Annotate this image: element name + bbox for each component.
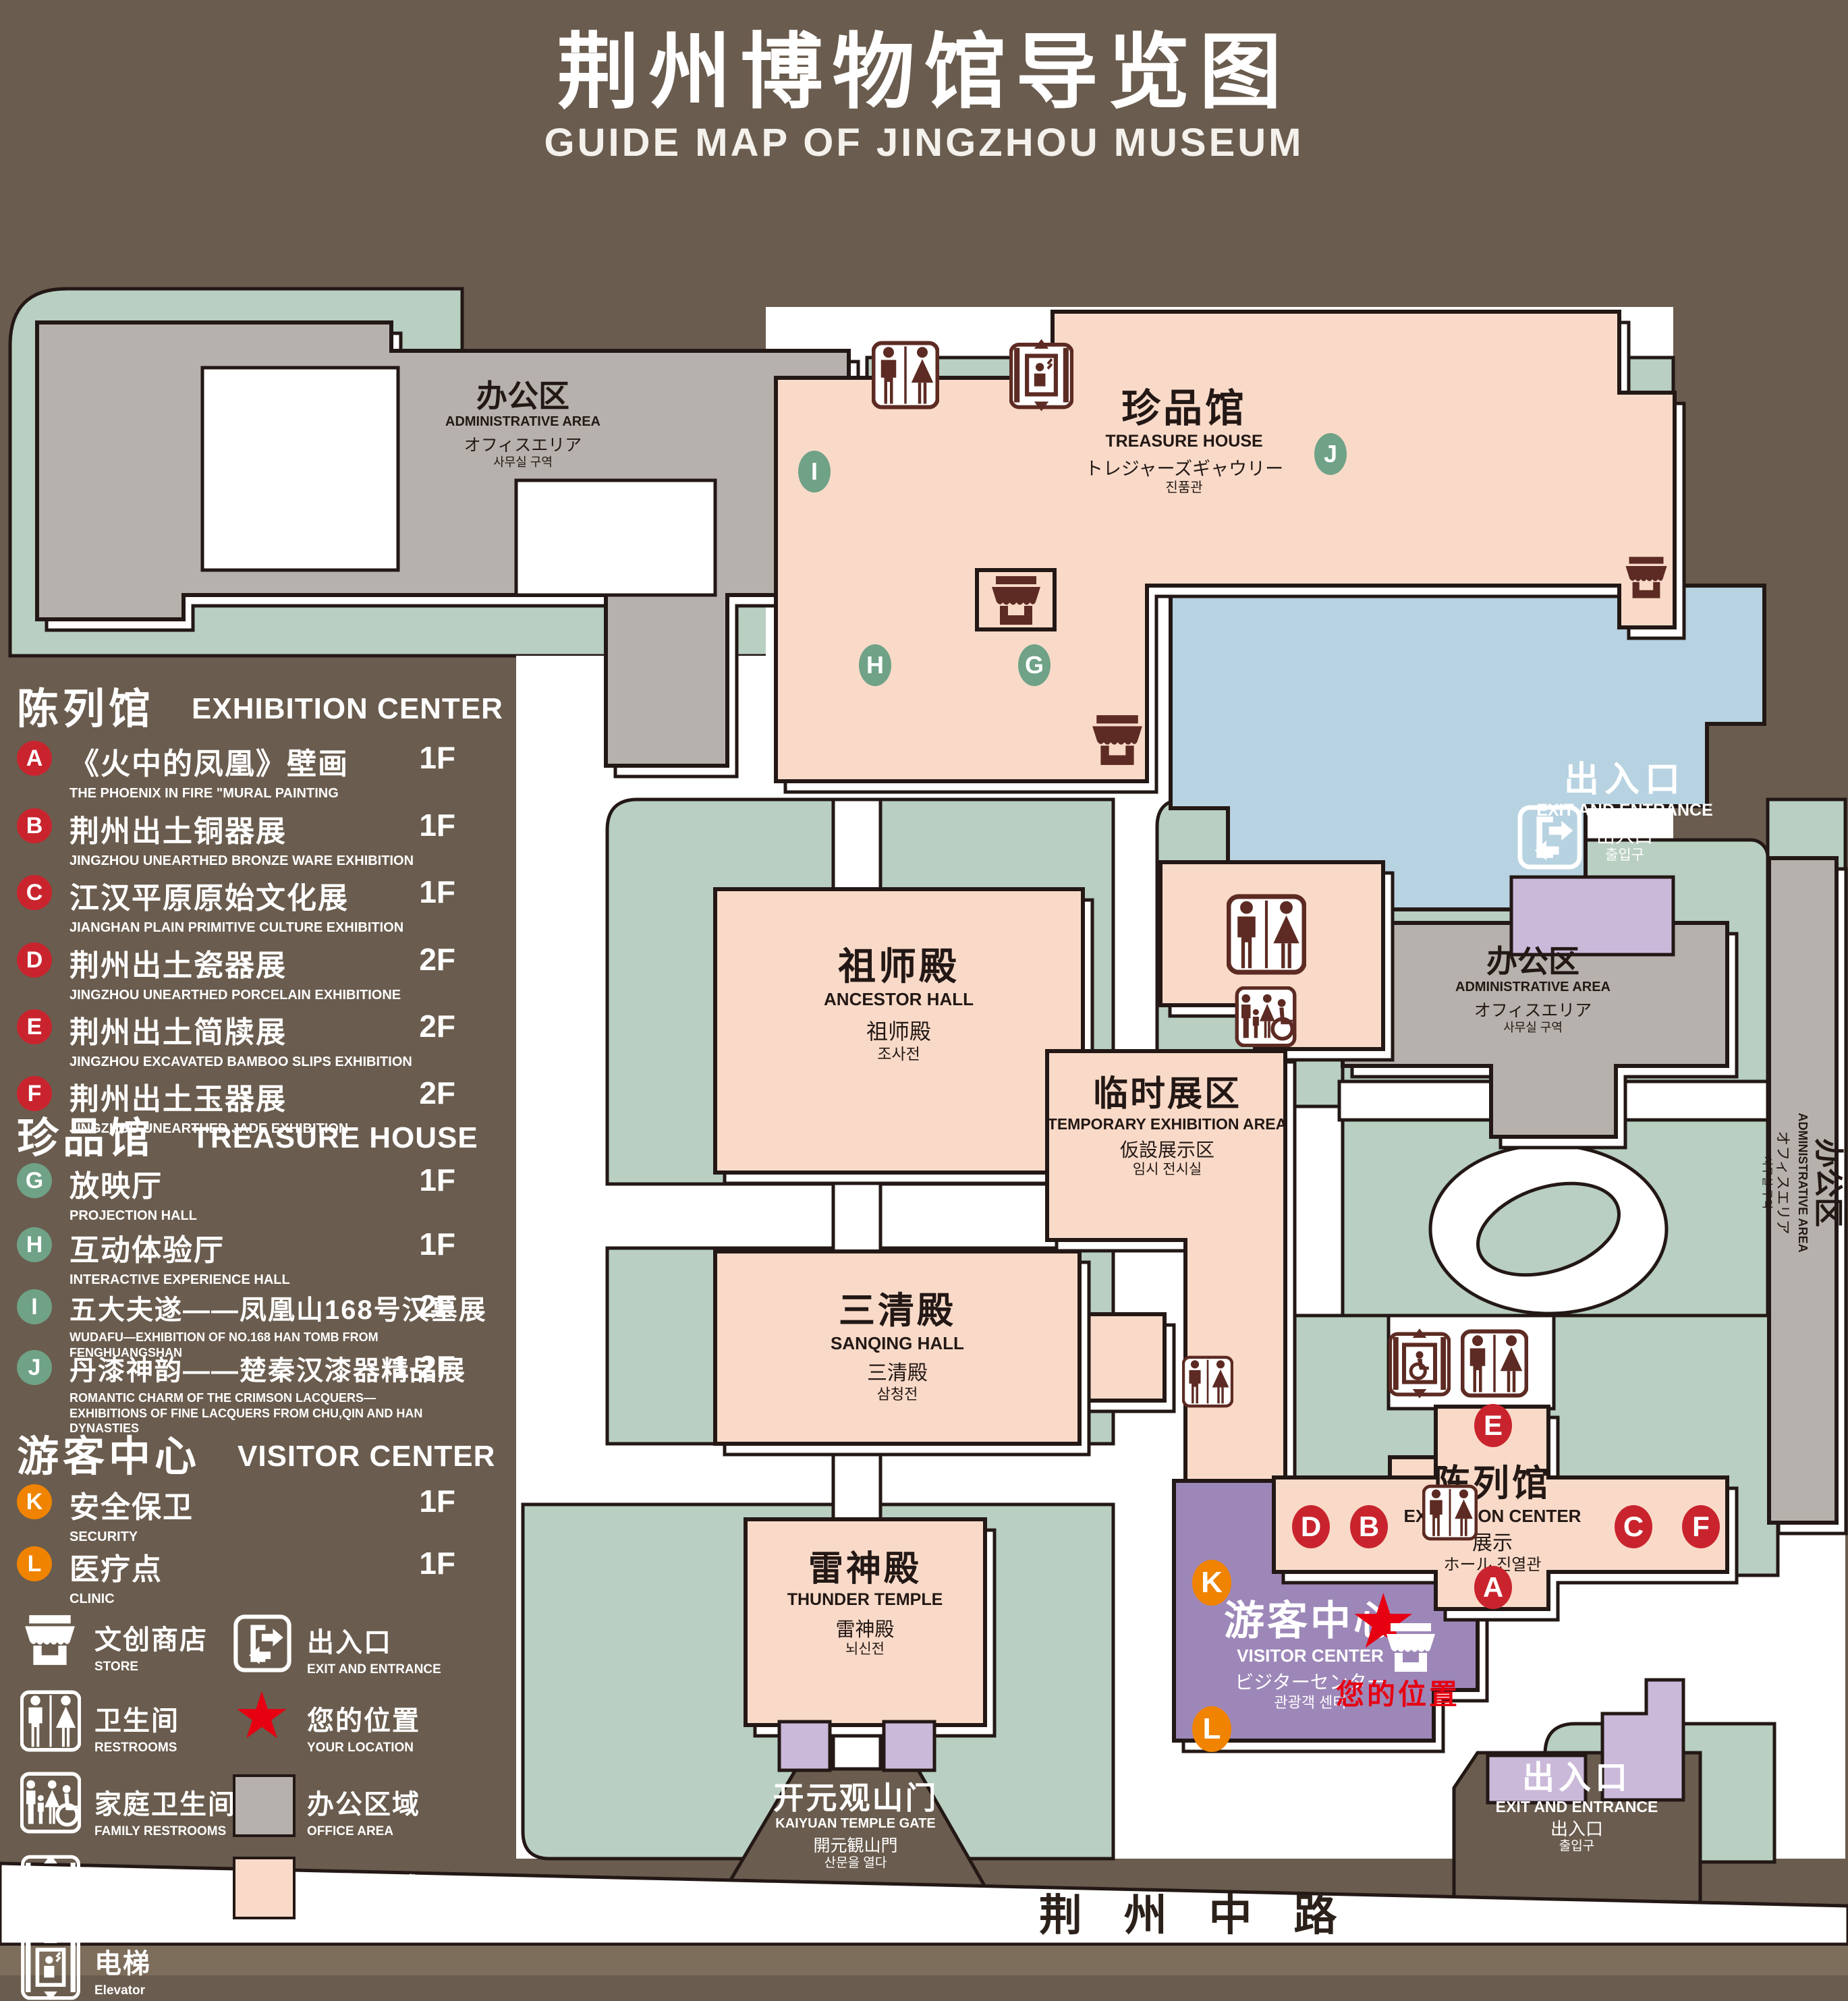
legend-marker: C xyxy=(17,875,52,910)
restroom-icon xyxy=(1182,1348,1233,1415)
marker-C: C xyxy=(1615,1505,1652,1548)
road-south-strip xyxy=(0,1946,1848,1975)
family-restroom-icon xyxy=(1233,986,1298,1047)
store-icon xyxy=(986,573,1046,627)
marker-J: J xyxy=(1314,433,1347,475)
legend-icon-restrooms: 卫生间 RESTROOMS xyxy=(94,1699,179,1755)
floor-badge: 2F xyxy=(419,1008,455,1044)
store-icon xyxy=(1382,1620,1440,1674)
sanqing-hall-label: 三清殿 SANQING HALL 三清殿 삼청전 xyxy=(749,1290,1046,1403)
legend-marker: A xyxy=(17,741,52,776)
office-swatch xyxy=(233,1774,296,1837)
treasure-house-label: 珍品馆 TREASURE HOUSE トレジャーズギャウリー 진품관 xyxy=(1032,386,1336,496)
store-icon xyxy=(20,1612,80,1668)
marker-E: E xyxy=(1474,1404,1512,1447)
gate-right-wing xyxy=(884,1722,934,1770)
marker-B: B xyxy=(1350,1505,1388,1548)
marker-D: D xyxy=(1292,1505,1330,1548)
admin-east-label: 办公区 ADMINISTRATIVE AREA オフィスエリア 사무실 구역 xyxy=(1405,943,1661,1036)
section-heading-zh: 珍品馆 xyxy=(17,1104,155,1164)
floor-badge: 1F xyxy=(419,1483,455,1519)
legend-icon-office-area: 办公区域 OFFICE AREA xyxy=(307,1782,420,1839)
legend-icon-store: 文创商店 STORE xyxy=(94,1618,208,1674)
legend-icon-your-location: 您的位置 YOUR LOCATION xyxy=(307,1699,420,1755)
restroom-icon xyxy=(1422,1479,1478,1546)
legend-icon-elevator: 电梯 Elevator xyxy=(94,1942,151,1998)
restroom-icon xyxy=(1227,889,1306,980)
section-heading-en: VISITOR CENTER xyxy=(237,1440,495,1473)
floor-badge: 2F xyxy=(419,941,455,978)
floor-badge: 1F xyxy=(419,1545,455,1581)
legend-icon-family-restrooms: 家庭卫生间 FAMILY RESTROOMS xyxy=(94,1782,236,1839)
section-heading-zh: 陈列馆 xyxy=(17,675,155,735)
family-restroom-icon xyxy=(20,1772,81,1834)
legend-icon-exit: 出入口 EXIT AND ENTRANCE xyxy=(307,1620,441,1677)
legend-marker: J xyxy=(17,1350,52,1385)
store-icon xyxy=(1622,555,1671,600)
gate-left-wing xyxy=(779,1722,830,1770)
road-label: 荆 州 中 路 xyxy=(1039,1881,1351,1943)
admin-side-label: 办公区 ADMINISTRATIVE AREA オフィスエリア 사무실 구역 xyxy=(1760,1034,1845,1331)
marker-F: F xyxy=(1682,1505,1720,1548)
floor-badge: 1F xyxy=(419,874,455,910)
marker-H: H xyxy=(859,644,891,686)
accessible-elevator-icon xyxy=(20,1854,81,1921)
legend-section-visitor-center: 游客中心 VISITOR CENTER xyxy=(17,1422,495,1483)
legend-icon-accessible-elevator: 无障碍电梯 ACCESSIBLE ELEVATOR xyxy=(94,1866,248,1923)
gate-label: 开元观山门 KAIYUAN TEMPLE GATE 開元観山門 산문을 열다 xyxy=(707,1780,1004,1871)
floor-badge: 1F xyxy=(419,739,455,776)
legend-icon-display-area: 展示区域 DISPLAY AREA xyxy=(307,1866,420,1923)
exit-icon xyxy=(233,1614,292,1673)
floor-badge: 2F xyxy=(419,1288,455,1324)
legend-marker: L xyxy=(17,1546,52,1581)
your-location-label: 您的位置 xyxy=(1336,1672,1460,1713)
restroom-icon xyxy=(1461,1326,1528,1401)
admin-nw-label: 办公区 ADMINISTRATIVE AREA オフィスエリア 사무실 구역 xyxy=(395,378,651,470)
legend-marker: D xyxy=(17,942,52,978)
legend-section-exhibition-center: 陈列馆 EXHIBITION CENTER xyxy=(17,675,503,735)
floor-badge: 1F xyxy=(419,807,455,843)
exit-icon xyxy=(1517,804,1583,870)
marker-G: G xyxy=(1018,644,1051,686)
legend-marker: G xyxy=(17,1163,52,1198)
legend-section-treasure-house: 珍品馆 TREASURE HOUSE xyxy=(17,1104,478,1164)
legend-marker: K xyxy=(17,1484,52,1519)
marker-I: I xyxy=(798,451,831,492)
floor-badge: 1-2F xyxy=(391,1349,455,1385)
exhibition-center-label: 陈列馆 EXHIBITION CENTER 展示 ホール 진열관 xyxy=(1344,1463,1641,1575)
temporary-exhibition-label: 临时展区 TEMPORARY EXHIBITION AREA 仮設展示区 임시 … xyxy=(999,1074,1336,1178)
ancestor-hall-label: 祖师殿 ANCESTOR HALL 祖师殿 조사전 xyxy=(750,945,1047,1063)
thunder-temple-label: 雷神殿 THUNDER TEMPLE 雷神殿 뇌신전 xyxy=(717,1549,1013,1658)
section-heading-en: TREASURE HOUSE xyxy=(192,1121,478,1155)
marker-A: A xyxy=(1474,1566,1512,1609)
legend-marker: E xyxy=(17,1009,52,1044)
floor-badge: 1F xyxy=(419,1162,455,1198)
section-heading-en: EXHIBITION CENTER xyxy=(192,692,503,726)
store-icon xyxy=(1088,712,1147,768)
legend-marker: I xyxy=(17,1289,52,1324)
exit-bottom-label: 出入口 EXIT AND ENTRANCE 出入口 출입구 xyxy=(1428,1759,1725,1855)
floor-badge: 1F xyxy=(419,1226,455,1262)
section-heading-zh: 游客中心 xyxy=(17,1422,200,1483)
display-swatch xyxy=(233,1857,296,1919)
legend-marker: H xyxy=(17,1227,52,1262)
restroom-icon xyxy=(872,337,939,413)
marker-K: K xyxy=(1192,1560,1231,1606)
legend-marker: B xyxy=(17,808,52,843)
location-star: ★ xyxy=(233,1684,291,1749)
accessible-elevator-icon xyxy=(1389,1328,1451,1399)
elevator-icon xyxy=(20,1934,81,2001)
elevator-icon xyxy=(1009,336,1073,414)
marker-L: L xyxy=(1192,1706,1231,1752)
restroom-icon xyxy=(20,1688,81,1754)
